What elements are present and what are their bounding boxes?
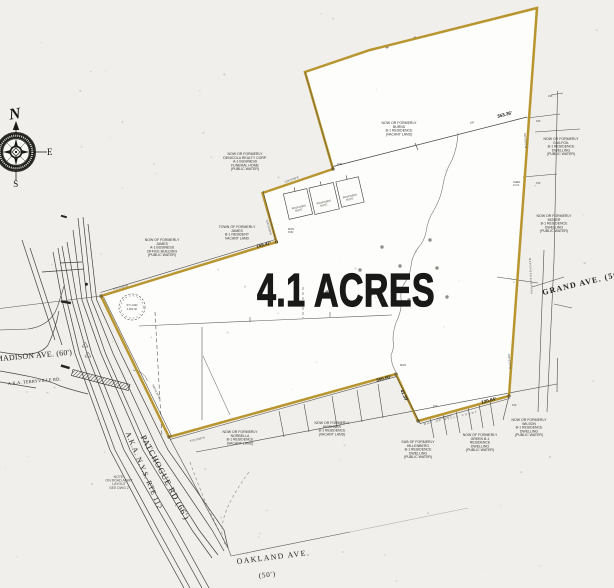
svg-text:VACANT LAND: VACANT LAND (225, 236, 250, 240)
svg-text:E: E (47, 147, 53, 157)
svg-text:(PUBLIC WATER): (PUBLIC WATER) (231, 167, 259, 171)
svg-text:(PUBLIC WATER): (PUBLIC WATER) (540, 229, 568, 233)
svg-text:(PUBLIC WATER): (PUBLIC WATER) (148, 253, 176, 257)
svg-text:150: 150 (536, 181, 541, 185)
svg-text:(PUBLIC WATER): (PUBLIC WATER) (547, 152, 575, 156)
svg-text:150: 150 (512, 403, 517, 407)
svg-text:(PUBLIC WATER): (PUBLIC WATER) (466, 448, 494, 452)
svg-text:(VACANT LAND): (VACANT LAND) (227, 441, 254, 445)
svg-text:FND: FND (288, 230, 293, 234)
svg-text:150: 150 (536, 119, 541, 123)
svg-text:4,360 SF: 4,360 SF (127, 307, 138, 311)
svg-text:FND: FND (337, 162, 342, 166)
svg-text:0.2 N: 0.2 N (513, 183, 519, 187)
svg-text:(PUBLIC WATER): (PUBLIC WATER) (515, 433, 543, 437)
svg-text:(PUBLIC WATER): (PUBLIC WATER) (404, 455, 432, 459)
svg-text:150: 150 (548, 94, 553, 98)
svg-text:SEE DWG 2: SEE DWG 2 (109, 486, 129, 490)
svg-text:(VACANT LAND): (VACANT LAND) (386, 132, 413, 136)
svg-text:MON: MON (400, 363, 406, 367)
svg-text:150: 150 (433, 404, 438, 408)
svg-text:S: S (13, 179, 18, 189)
svg-text:4.1 ACRES: 4.1 ACRES (257, 264, 435, 316)
svg-text:(VACANT LAND): (VACANT LAND) (319, 432, 346, 436)
svg-text:ST LAND: ST LAND (127, 303, 138, 307)
